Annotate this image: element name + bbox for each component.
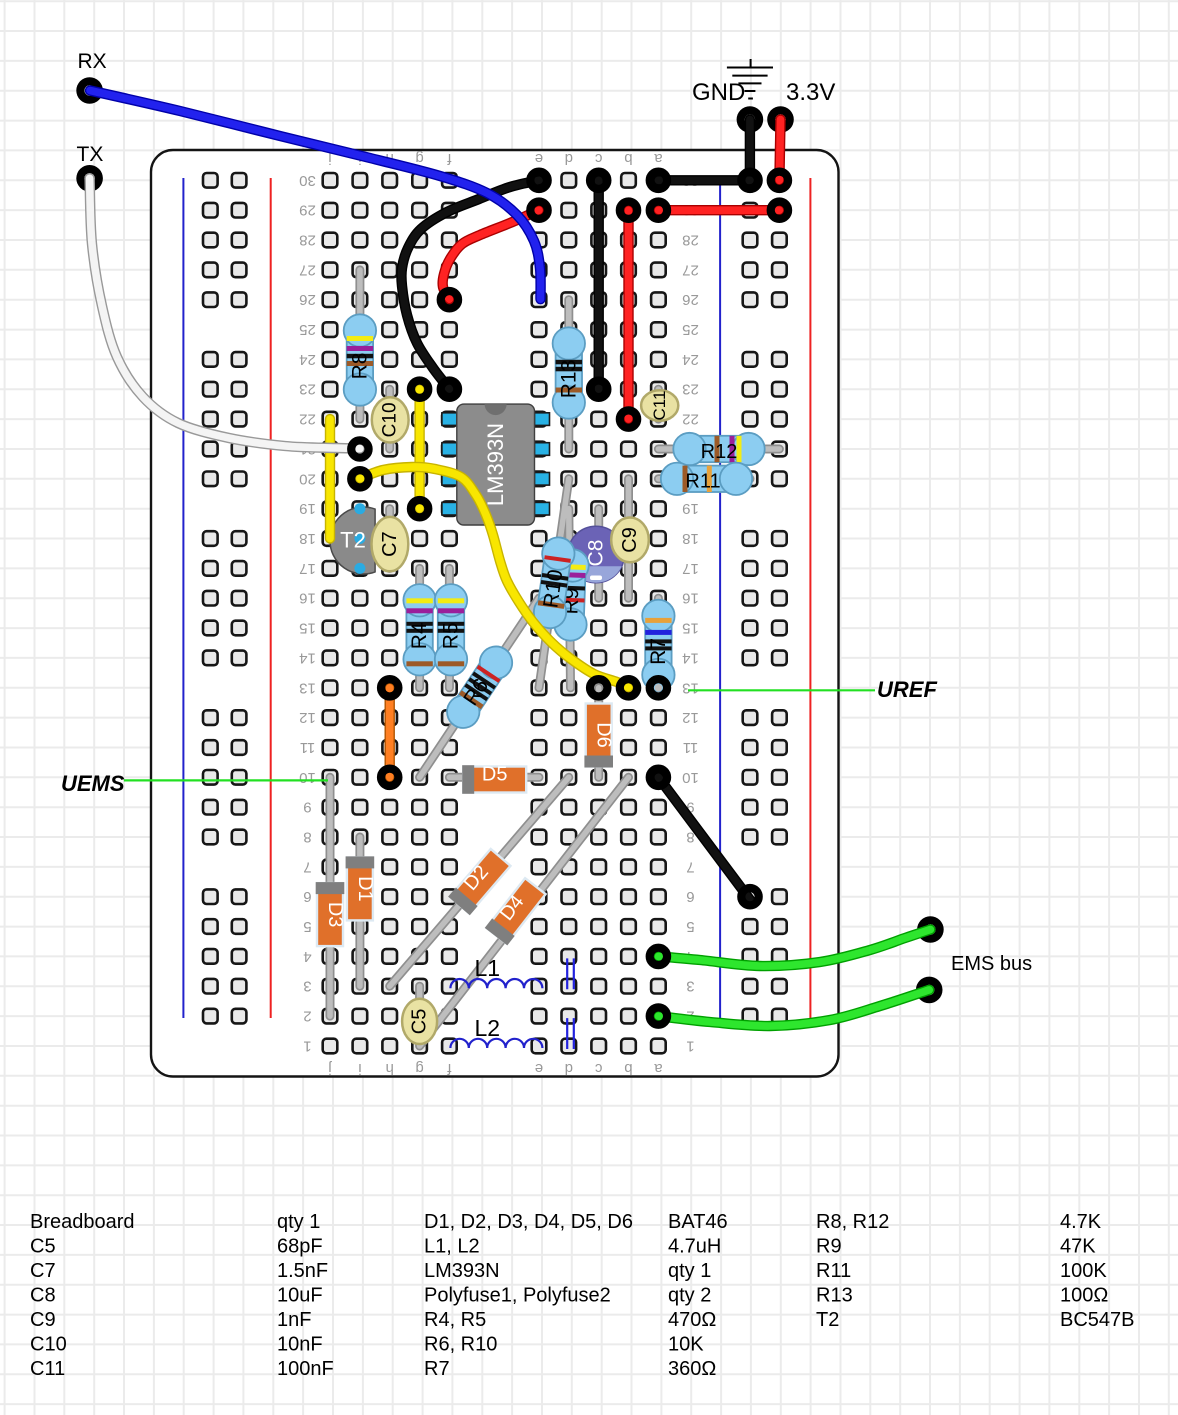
svg-text:BAT46: BAT46 — [668, 1211, 728, 1233]
svg-text:R5: R5 — [440, 622, 463, 649]
svg-text:R13: R13 — [816, 1285, 853, 1307]
svg-text:R8, R12: R8, R12 — [816, 1211, 889, 1233]
svg-text:28: 28 — [299, 232, 316, 249]
svg-text:1: 1 — [686, 1038, 694, 1055]
svg-text:C10: C10 — [30, 1334, 67, 1356]
svg-text:D6: D6 — [593, 722, 615, 748]
svg-text:22: 22 — [299, 411, 316, 428]
svg-text:BC547B: BC547B — [1060, 1309, 1135, 1331]
svg-text:19: 19 — [682, 500, 699, 517]
svg-text:1.5nF: 1.5nF — [277, 1260, 328, 1282]
svg-text:e: e — [535, 1060, 543, 1077]
svg-text:7: 7 — [303, 858, 311, 875]
svg-text:b: b — [624, 1060, 632, 1077]
svg-text:23: 23 — [299, 381, 316, 398]
svg-text:EMS bus: EMS bus — [951, 953, 1032, 975]
svg-text:25: 25 — [682, 321, 699, 338]
svg-text:Polyfuse1, Polyfuse2: Polyfuse1, Polyfuse2 — [424, 1285, 611, 1307]
svg-text:e: e — [535, 150, 543, 167]
svg-text:a: a — [654, 150, 663, 167]
svg-text:12: 12 — [299, 709, 316, 726]
svg-text:C10: C10 — [380, 402, 401, 437]
svg-text:c: c — [594, 1060, 602, 1077]
svg-text:j: j — [328, 1060, 332, 1077]
svg-text:24: 24 — [682, 351, 699, 368]
svg-text:8: 8 — [303, 829, 311, 846]
svg-text:10: 10 — [682, 769, 699, 786]
svg-text:T2: T2 — [340, 528, 366, 553]
svg-text:23: 23 — [682, 381, 699, 398]
svg-text:C11: C11 — [30, 1358, 65, 1380]
svg-text:LM393N: LM393N — [424, 1260, 500, 1282]
svg-text:qty 1: qty 1 — [668, 1260, 711, 1282]
svg-text:17: 17 — [299, 560, 316, 577]
svg-text:30: 30 — [299, 172, 316, 189]
svg-text:6: 6 — [303, 888, 311, 905]
svg-text:UREF: UREF — [877, 677, 937, 702]
svg-text:100Ω: 100Ω — [1060, 1285, 1108, 1307]
svg-text:d: d — [565, 1060, 573, 1077]
svg-text:GND: GND — [692, 79, 745, 106]
svg-text:7: 7 — [686, 858, 694, 875]
svg-text:4.7K: 4.7K — [1060, 1211, 1102, 1233]
svg-text:14: 14 — [299, 649, 316, 666]
svg-text:C5: C5 — [30, 1235, 56, 1257]
svg-text:c: c — [594, 150, 602, 167]
svg-text:10uF: 10uF — [277, 1285, 323, 1307]
svg-text:g: g — [415, 1060, 423, 1077]
svg-text:16: 16 — [299, 590, 316, 607]
svg-text:5: 5 — [686, 918, 694, 935]
svg-text:C9: C9 — [30, 1309, 56, 1331]
svg-text:L2: L2 — [475, 1015, 501, 1041]
svg-text:C9: C9 — [619, 527, 641, 553]
svg-text:RX: RX — [78, 50, 107, 73]
svg-text:47K: 47K — [1060, 1235, 1096, 1257]
svg-text:b: b — [624, 150, 632, 167]
svg-text:L1: L1 — [475, 955, 501, 981]
svg-text:R13: R13 — [557, 360, 580, 399]
svg-text:4: 4 — [303, 948, 311, 965]
svg-text:13: 13 — [682, 679, 699, 696]
svg-text:Breadboard: Breadboard — [30, 1211, 135, 1233]
svg-text:d: d — [565, 150, 573, 167]
svg-text:29: 29 — [299, 202, 316, 219]
svg-text:18: 18 — [299, 530, 316, 547]
svg-text:C7: C7 — [379, 531, 401, 557]
svg-text:R12: R12 — [701, 441, 738, 463]
svg-text:R11: R11 — [685, 471, 720, 493]
svg-text:R11: R11 — [816, 1260, 851, 1282]
svg-text:TX: TX — [77, 143, 104, 166]
svg-text:C7: C7 — [30, 1260, 56, 1282]
svg-text:a: a — [654, 1060, 663, 1077]
svg-text:D1, D2, D3, D4, D5, D6: D1, D2, D3, D4, D5, D6 — [424, 1211, 633, 1233]
svg-text:R6, R10: R6, R10 — [424, 1334, 497, 1356]
svg-text:27: 27 — [299, 261, 316, 278]
svg-text:5: 5 — [303, 918, 311, 935]
svg-text:100K: 100K — [1060, 1260, 1107, 1282]
svg-text:24: 24 — [299, 351, 316, 368]
svg-text:C11: C11 — [650, 391, 669, 421]
svg-text:25: 25 — [299, 321, 316, 338]
svg-text:28: 28 — [682, 232, 699, 249]
svg-text:68pF: 68pF — [277, 1235, 323, 1257]
svg-text:15: 15 — [299, 620, 316, 637]
svg-text:R4: R4 — [408, 622, 431, 649]
svg-text:R4, R5: R4, R5 — [424, 1309, 486, 1331]
svg-text:15: 15 — [682, 620, 699, 637]
svg-text:2: 2 — [303, 1008, 311, 1025]
svg-text:R9: R9 — [816, 1235, 842, 1257]
svg-text:D5: D5 — [482, 764, 508, 786]
svg-text:100nF: 100nF — [277, 1358, 334, 1380]
svg-text:1nF: 1nF — [277, 1309, 311, 1331]
svg-text:17: 17 — [682, 560, 699, 577]
svg-text:470Ω: 470Ω — [668, 1309, 716, 1331]
svg-text:3: 3 — [686, 978, 694, 995]
svg-text:1: 1 — [303, 1038, 311, 1055]
svg-text:qty 2: qty 2 — [668, 1285, 711, 1307]
svg-text:26: 26 — [682, 291, 699, 308]
svg-text:qty 1: qty 1 — [277, 1211, 320, 1233]
svg-text:3: 3 — [303, 978, 311, 995]
svg-text:C8: C8 — [30, 1285, 56, 1307]
svg-text:4.7uH: 4.7uH — [668, 1235, 721, 1257]
svg-text:D1: D1 — [354, 876, 376, 902]
svg-text:26: 26 — [299, 291, 316, 308]
svg-text:18: 18 — [682, 530, 699, 547]
svg-text:6: 6 — [686, 888, 694, 905]
svg-text:22: 22 — [682, 411, 699, 428]
svg-text:27: 27 — [682, 261, 699, 278]
svg-text:12: 12 — [682, 709, 699, 726]
svg-text:16: 16 — [682, 590, 699, 607]
svg-text:10: 10 — [299, 769, 316, 786]
svg-text:19: 19 — [299, 500, 316, 517]
svg-text:10K: 10K — [668, 1334, 704, 1356]
svg-text:D3: D3 — [324, 902, 346, 928]
svg-text:10nF: 10nF — [277, 1334, 323, 1356]
svg-text:11: 11 — [300, 739, 316, 756]
svg-text:C5: C5 — [409, 1009, 431, 1035]
svg-text:360Ω: 360Ω — [668, 1358, 716, 1380]
svg-text:UEMS: UEMS — [61, 771, 125, 796]
svg-text:13: 13 — [299, 679, 316, 696]
svg-text:R7: R7 — [647, 638, 670, 665]
svg-text:R8: R8 — [348, 353, 371, 380]
svg-text:14: 14 — [682, 649, 699, 666]
svg-text:9: 9 — [303, 799, 311, 816]
svg-text:h: h — [386, 1060, 394, 1077]
svg-text:i: i — [358, 1060, 361, 1077]
svg-text:R7: R7 — [424, 1358, 450, 1380]
svg-text:3.3V: 3.3V — [786, 79, 835, 106]
svg-text:20: 20 — [299, 470, 316, 487]
svg-text:11: 11 — [683, 739, 699, 756]
svg-text:LM393N: LM393N — [483, 423, 508, 506]
svg-text:T2: T2 — [816, 1309, 839, 1331]
svg-text:L1, L2: L1, L2 — [424, 1235, 480, 1257]
